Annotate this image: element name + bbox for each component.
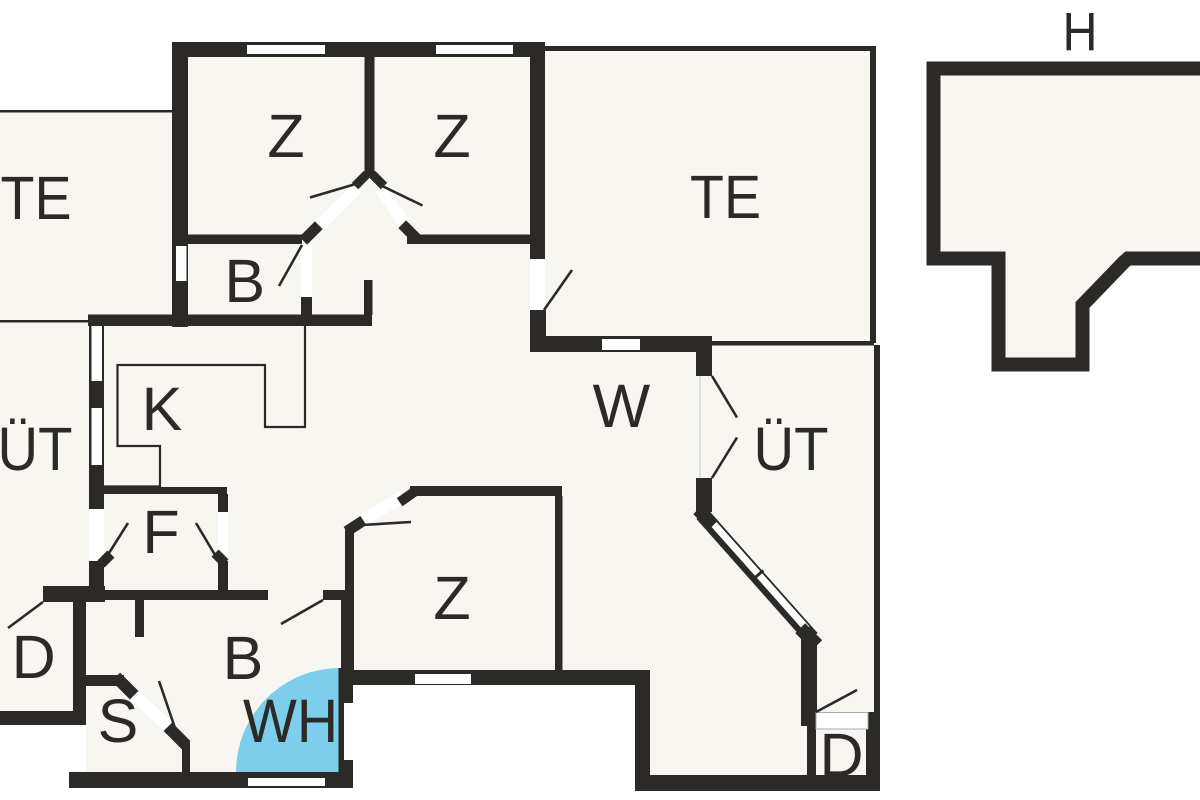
svg-text:B: B (223, 624, 264, 692)
svg-text:H: H (1063, 2, 1098, 62)
svg-text:B: B (224, 247, 265, 315)
svg-text:W: W (593, 372, 651, 440)
svg-text:D: D (819, 721, 863, 789)
svg-text:TE: TE (1, 164, 72, 232)
svg-text:ÜT: ÜT (754, 415, 829, 483)
svg-text:F: F (142, 498, 179, 566)
svg-text:D: D (12, 623, 56, 691)
svg-text:TE: TE (690, 163, 761, 231)
svg-text:S: S (98, 687, 139, 755)
svg-text:Z: Z (267, 102, 304, 170)
svg-text:Z: Z (433, 564, 470, 632)
svg-text:WH: WH (243, 687, 338, 755)
svg-text:ÜT: ÜT (0, 415, 73, 483)
svg-text:Z: Z (433, 102, 470, 170)
svg-text:K: K (142, 375, 183, 443)
